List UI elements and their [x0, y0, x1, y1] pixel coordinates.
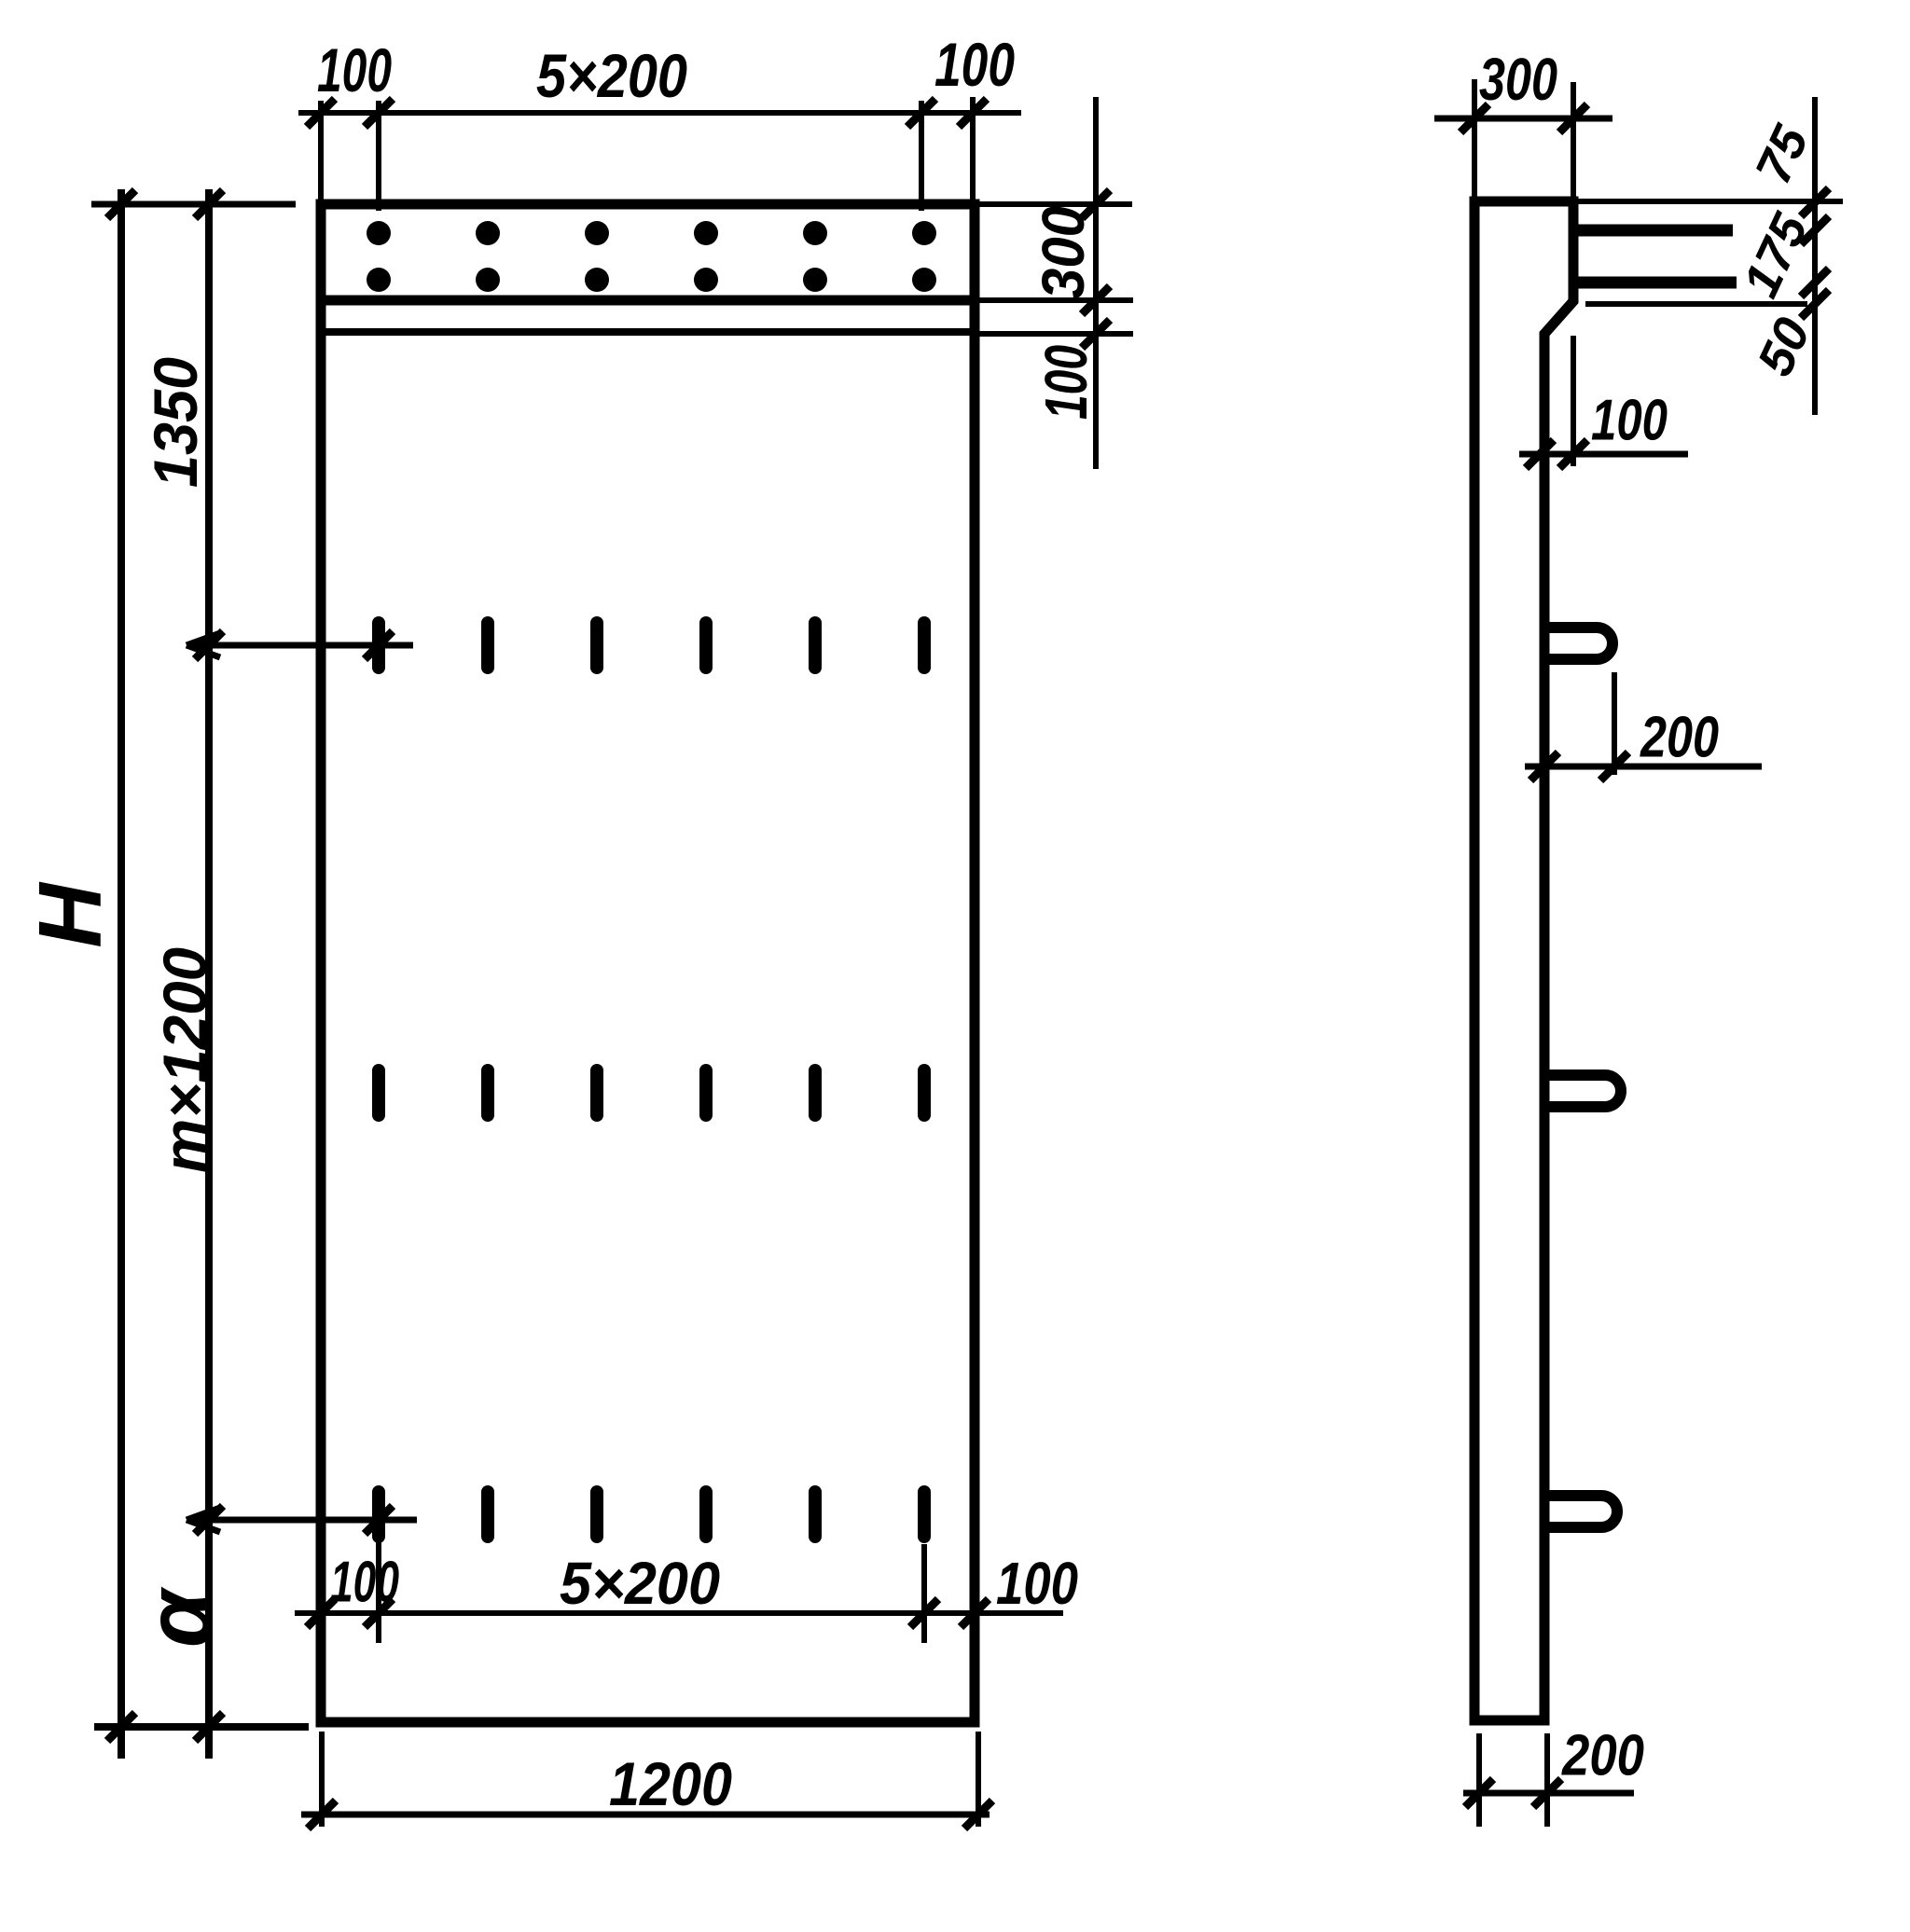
svg-text:H: H — [21, 882, 120, 948]
svg-text:100: 100 — [1591, 389, 1668, 453]
svg-text:200: 200 — [1561, 1724, 1644, 1788]
svg-text:300: 300 — [1479, 46, 1557, 113]
svg-text:100: 100 — [317, 35, 392, 104]
svg-text:5×200: 5×200 — [560, 1550, 720, 1617]
svg-text:100: 100 — [934, 30, 1015, 99]
svg-text:m×1200: m×1200 — [150, 947, 219, 1173]
svg-text:α: α — [127, 1586, 231, 1648]
svg-text:100: 100 — [1032, 345, 1100, 420]
svg-text:100: 100 — [330, 1551, 399, 1615]
svg-text:300: 300 — [1030, 206, 1097, 299]
svg-text:5×200: 5×200 — [536, 41, 687, 110]
svg-text:1350: 1350 — [141, 357, 210, 488]
svg-text:1200: 1200 — [609, 1749, 732, 1818]
svg-text:100: 100 — [996, 1550, 1078, 1617]
svg-text:200: 200 — [1640, 706, 1719, 770]
